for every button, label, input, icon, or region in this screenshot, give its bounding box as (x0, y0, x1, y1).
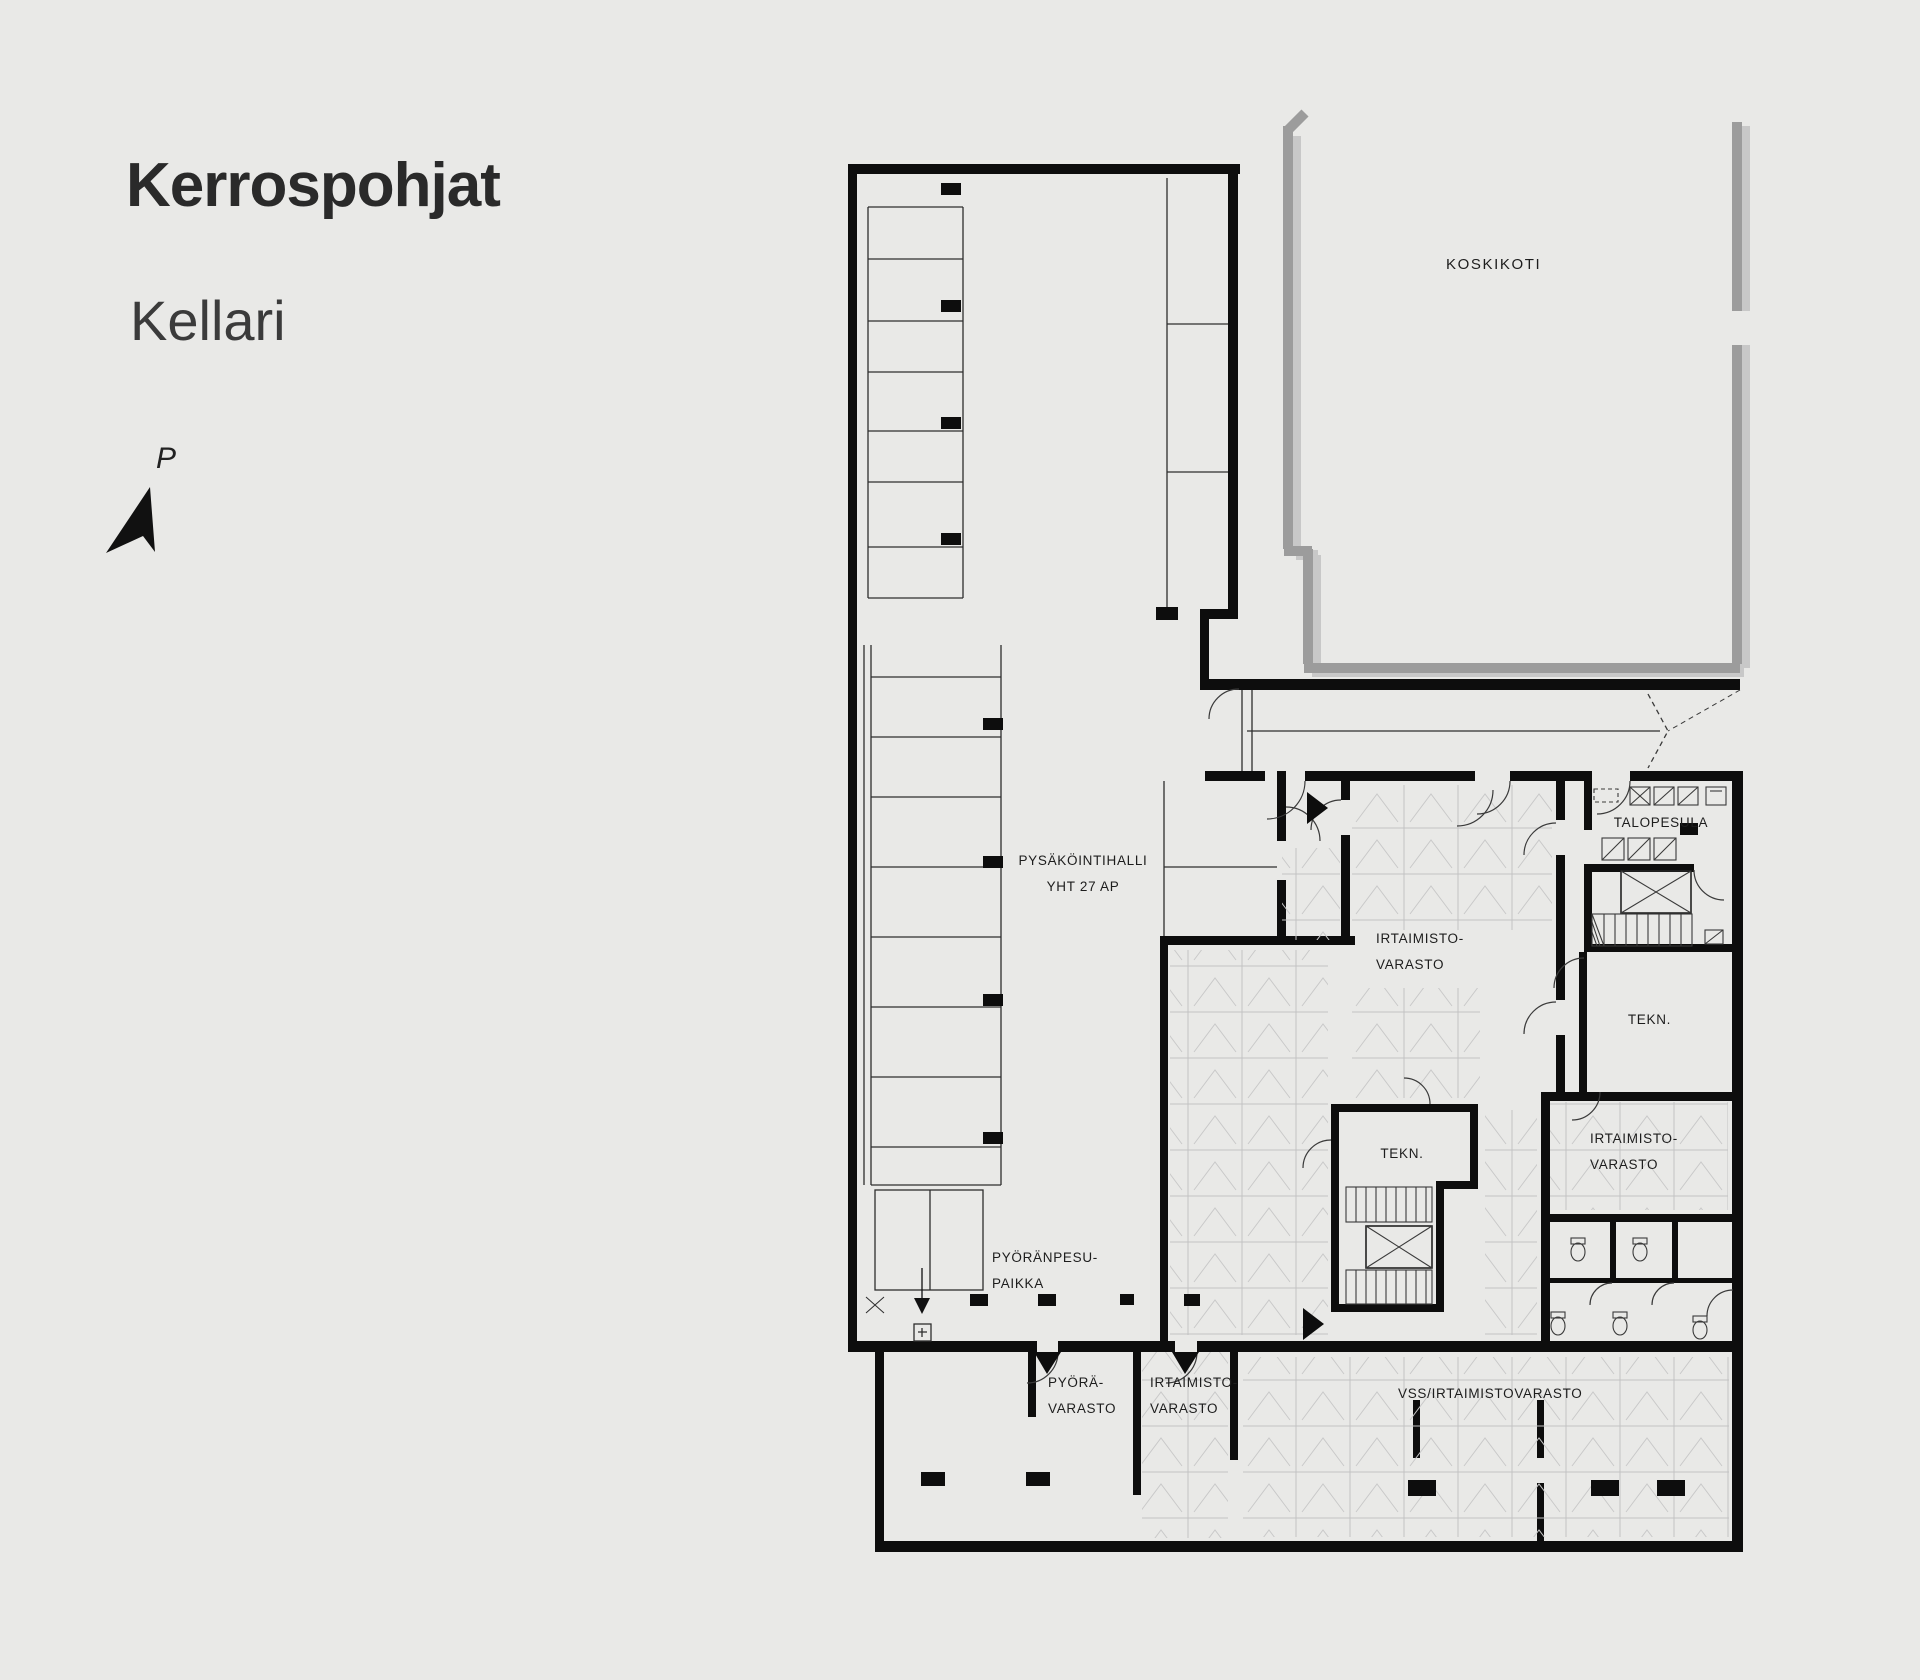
label-technical-center: TEKN. (1362, 1141, 1442, 1167)
parking-hall-capacity: YHT 27 AP (1008, 874, 1158, 900)
label-storage-right: IRTAIMISTO- VARASTO (1590, 1126, 1678, 1179)
parking-hall-name: PYSÄKÖINTIHALLI (1008, 848, 1158, 874)
label-bike-storage: PYÖRÄ- VARASTO (1048, 1370, 1116, 1423)
label-parking-hall: PYSÄKÖINTIHALLI YHT 27 AP (1008, 848, 1158, 901)
label-laundry: TALOPESULA (1596, 810, 1726, 836)
label-storage-main: IRTAIMISTO- VARASTO (1376, 926, 1464, 979)
plan-labels: KOSKIKOTI PYSÄKÖINTIHALLI YHT 27 AP IRTA… (0, 0, 1920, 1680)
label-technical-right: TEKN. (1607, 1007, 1692, 1033)
label-storage-bottom: IRTAIMISTO- VARASTO (1150, 1370, 1238, 1423)
label-bike-wash: PYÖRÄNPESU- PAIKKA (992, 1245, 1098, 1298)
floorplan-page: Kerrospohjat Kellari P (0, 0, 1920, 1680)
label-shelter-storage: VSS/IRTAIMISTOVARASTO (1398, 1381, 1583, 1407)
label-koskikoti: KOSKIKOTI (1446, 250, 1541, 279)
